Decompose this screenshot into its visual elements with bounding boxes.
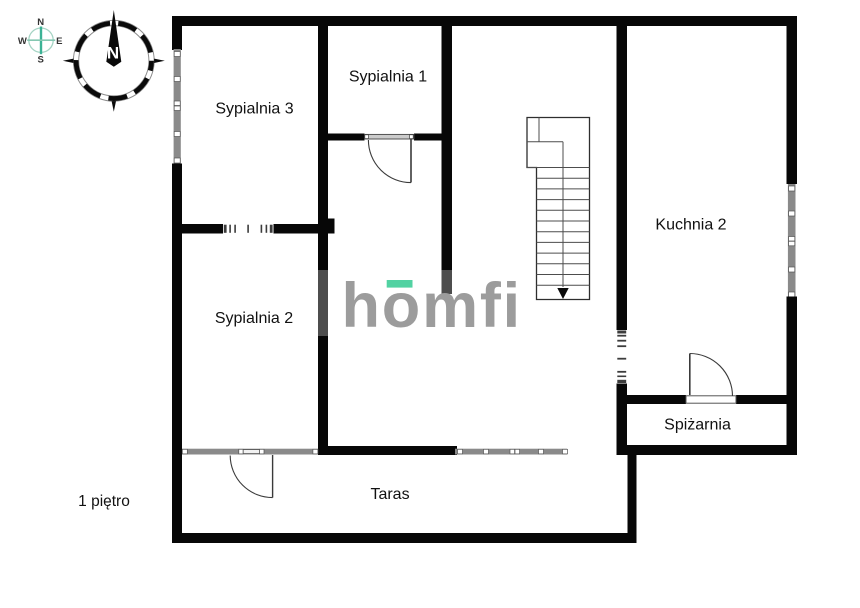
svg-text:homfi: homfi [342,271,522,341]
svg-text:Spiżarnia: Spiżarnia [664,417,731,434]
svg-text:E: E [56,36,62,47]
svg-text:W: W [18,36,27,47]
svg-text:Sypialnia 3: Sypialnia 3 [215,101,293,118]
svg-text:1 piętro: 1 piętro [78,493,130,510]
svg-text:N: N [37,17,44,28]
svg-text:Taras: Taras [370,486,409,503]
svg-text:Kuchnia 2: Kuchnia 2 [655,217,726,234]
svg-text:S: S [38,55,44,66]
svg-text:Sypialnia 2: Sypialnia 2 [215,310,293,327]
svg-text:N: N [107,44,119,63]
svg-text:Sypialnia 1: Sypialnia 1 [349,69,427,86]
